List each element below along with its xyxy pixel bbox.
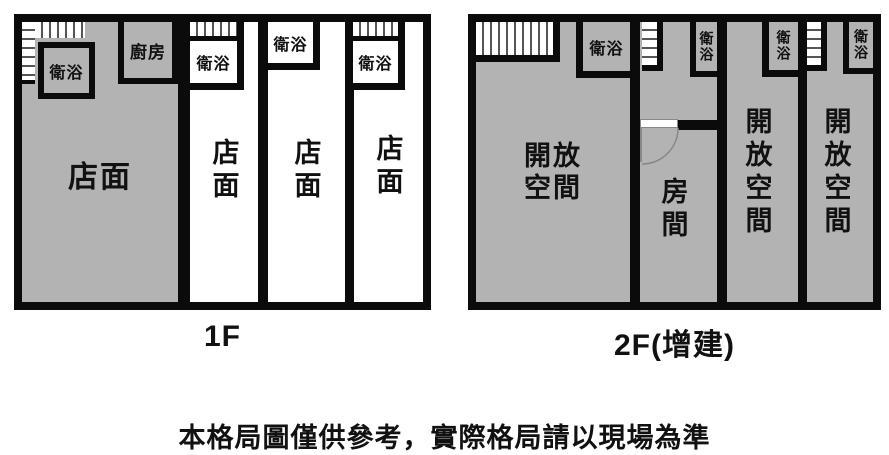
2f-unit1-room-label: 開放空間 bbox=[520, 140, 586, 205]
2f-unit3-bathroom-label: 衛浴 bbox=[774, 30, 794, 62]
1f-unit3-bathroom-label: 衛浴 bbox=[273, 31, 307, 55]
1f-unit1-stairs-horizontal bbox=[35, 22, 85, 38]
2f-unit2-room-label: 房間 bbox=[654, 177, 693, 243]
2f-unit1-stairs bbox=[476, 22, 560, 62]
1f-unit3-bathroom: 衛浴 bbox=[268, 22, 320, 70]
2f-unit4-bathroom: 衛浴 bbox=[843, 22, 873, 74]
floorplan-page: 衛浴 廚房 店面 衛浴 店面 衛浴 店面 衛浴 店面 bbox=[0, 0, 889, 455]
2f-unit2-bathroom-label: 衛浴 bbox=[697, 31, 717, 63]
2f-unit4-bathroom-label: 衛浴 bbox=[851, 29, 871, 61]
1f-unit2-stairs bbox=[190, 22, 237, 36]
2f-unit4-stairs bbox=[807, 22, 827, 71]
disclaimer-text: 本格局圖僅供參考，實際格局請以現場為準 bbox=[0, 416, 889, 455]
floor2-caption: 2F(增建) bbox=[468, 320, 881, 364]
2f-unit2-door-swing-arc bbox=[640, 126, 680, 166]
1f-wall-unit1-unit2 bbox=[178, 22, 190, 302]
2f-unit1-bathroom-label: 衛浴 bbox=[589, 35, 623, 59]
1f-unit4-service-block: 衛浴 bbox=[353, 22, 405, 90]
1f-unit2-storefront-label: 店面 bbox=[205, 138, 244, 204]
1f-unit1-kitchen: 廚房 bbox=[118, 22, 178, 84]
2f-unit2-room-wall bbox=[678, 120, 717, 130]
1f-unit4-storefront-label: 店面 bbox=[369, 134, 408, 200]
1f-unit1-stairs-vertical bbox=[22, 22, 35, 84]
1f-unit2-service-block: 衛浴 bbox=[190, 22, 244, 90]
floorplan-2f: 衛浴 開放空間 衛浴 房間 衛浴 開放空間 衛浴 開放空間 bbox=[468, 14, 881, 310]
2f-unit2-stairs bbox=[642, 22, 663, 71]
2f-unit4-room-label: 開放空間 bbox=[817, 107, 856, 239]
1f-unit2-bathroom-label: 衛浴 bbox=[196, 50, 230, 74]
2f-unit2-bathroom: 衛浴 bbox=[690, 22, 717, 77]
2f-wall-unit1-unit2 bbox=[630, 22, 640, 302]
2f-unit1-bathroom: 衛浴 bbox=[576, 22, 630, 78]
1f-unit4-bathroom: 衛浴 bbox=[353, 41, 398, 83]
1f-unit4-stairs bbox=[353, 22, 398, 36]
1f-unit1-bathroom: 衛浴 bbox=[38, 42, 95, 99]
1f-unit2-bathroom: 衛浴 bbox=[190, 41, 237, 83]
1f-unit1-storefront-label: 店面 bbox=[22, 152, 178, 196]
2f-wall-unit3-unit4 bbox=[798, 22, 807, 302]
1f-unit1-kitchen-label: 廚房 bbox=[130, 38, 166, 63]
1f-unit3-storefront-label: 店面 bbox=[287, 138, 326, 204]
floor1-caption: 1F bbox=[14, 320, 431, 354]
floorplan-1f: 衛浴 廚房 店面 衛浴 店面 衛浴 店面 衛浴 店面 bbox=[14, 14, 431, 310]
2f-unit3-bathroom: 衛浴 bbox=[762, 22, 798, 77]
1f-unit4-bathroom-label: 衛浴 bbox=[358, 50, 392, 74]
1f-wall-unit2-unit3 bbox=[258, 22, 268, 302]
2f-unit3-room-label: 開放空間 bbox=[738, 107, 777, 239]
1f-unit1-bathroom-label: 衛浴 bbox=[49, 59, 83, 83]
2f-wall-unit2-unit3 bbox=[717, 22, 727, 302]
